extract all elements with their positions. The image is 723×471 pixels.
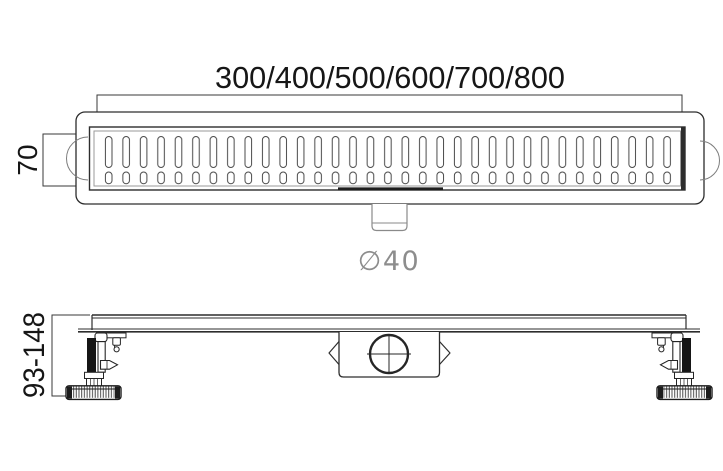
drain-channel-plan [67, 112, 720, 204]
drawing-canvas: 300/400/500/600/700/800 70 ∅40 [0, 0, 723, 471]
width-dimension-line [43, 134, 76, 186]
grate-slots [100, 135, 676, 186]
adjustable-foot-left [66, 333, 126, 399]
outlet-diameter-label: ∅40 [358, 246, 420, 277]
top-view: 300/400/500/600/700/800 70 ∅40 [12, 60, 720, 277]
trap-body [329, 332, 450, 377]
height-dimension-line [52, 315, 90, 396]
grate-end-bar [681, 128, 685, 190]
channel-side-profile [78, 315, 700, 332]
height-dimension-label: 93-148 [18, 312, 51, 398]
width-dimension-label: 70 [12, 144, 43, 175]
adjustable-foot-right [652, 333, 712, 399]
technical-drawing: 300/400/500/600/700/800 70 ∅40 [0, 0, 723, 471]
outlet-stub [372, 204, 407, 231]
trap-right-clip [440, 342, 451, 365]
length-dimension-label: 300/400/500/600/700/800 [215, 60, 565, 95]
outlet-stub-outline [372, 204, 407, 231]
side-view: 93-148 [18, 312, 712, 399]
trap-left-clip [329, 342, 339, 365]
